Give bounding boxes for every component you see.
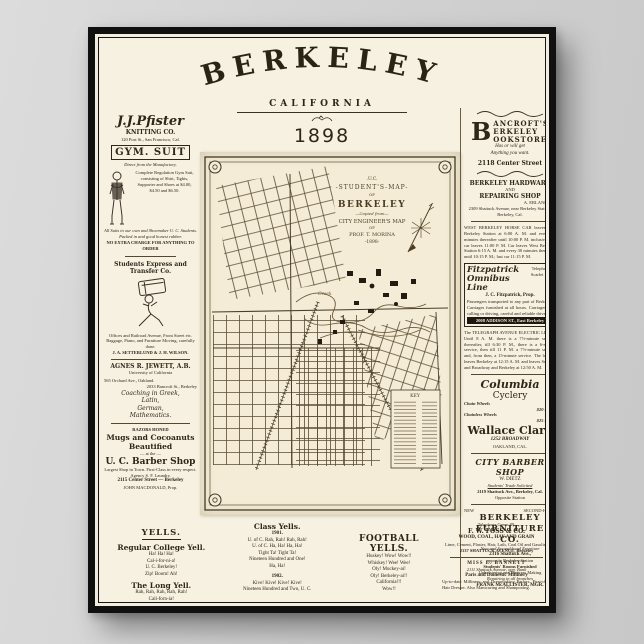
barber-body: Largest Shop in Town. First-Class in eve… — [104, 467, 197, 479]
compass-icon — [408, 203, 434, 252]
cartouche-year: -1898- — [365, 239, 380, 245]
furniture-top-left: NEW — [464, 508, 474, 513]
gym-man-illustration-icon — [104, 170, 130, 228]
yells-column: YELLS. Regular College Yell. Ha! Ha! Ha!… — [111, 522, 212, 603]
citybarber-addr: 2119 Shattuck Ave., Berkeley, Cal. — [464, 489, 546, 495]
key-entries — [394, 400, 437, 465]
regular-yell-title: Regular College Yell. — [111, 543, 212, 552]
divider — [471, 504, 546, 505]
jewett-line4: Mathematics. — [104, 412, 197, 420]
barber-title: U. C. Barber Shop — [104, 457, 197, 467]
barber-line2: Beautified — [104, 442, 197, 451]
barber-addr: 2115 Center Street — Berkeley — [104, 478, 197, 485]
yell-line: Ha, Ha! — [219, 564, 336, 571]
foss-body: Lime, Cement, Plaster, Hair, Lath, Coal … — [442, 542, 546, 548]
product-photo-background: { "colors":{"paper":"#f7f1e2","ink":"#2e… — [0, 0, 644, 644]
furniture-top-right: SECOND-HAND — [524, 508, 547, 513]
hardware-line3: REPAIRING SHOP — [464, 193, 546, 201]
ad-foss: Telephone Green 89. F. W. FOSS & CO. WOO… — [442, 522, 546, 554]
cartouche-of1: OF — [369, 192, 375, 197]
fitz-name2: Omnibus Line — [467, 275, 529, 293]
poster: BERKELEY CALIFORNIA 1898 J.J.Pfister KNI… — [98, 37, 546, 603]
pfister-name: J.J.Pfister — [104, 114, 197, 129]
cyclery-city: OAKLAND, CAL. — [464, 444, 546, 450]
bancroft-addr: 2118 Center Street — [464, 160, 546, 168]
ad-jewett: AGNES R. JEWETT, A.B. University of Cali… — [104, 363, 197, 420]
football-yells-title: FOOTBALL YELLS. — [343, 534, 435, 554]
foss-title: F. W. FOSS & CO. — [442, 528, 546, 536]
pfister-tagline: Direct from the Manufactory. — [104, 162, 197, 168]
express-footer: J. A. SETTERLUND & J. H. WILSON. — [104, 350, 197, 356]
ad-students-express: Students Express and Transfer Co. Office… — [104, 261, 197, 356]
jewett-line1: Coaching in Greek, — [104, 390, 197, 398]
class-yells-column: Class Yells. 1901. U. of C. Rah, Rah! Ra… — [219, 522, 336, 603]
fleuron-icon — [310, 115, 334, 122]
map-cartouche: .U.C. -STUDENT'S-MAP- OF BERKELEY —Copie… — [336, 176, 409, 245]
divider — [471, 374, 546, 375]
horsecar-schedule: WEST BERKELEY HORSE CAR leaves East Berk… — [464, 225, 546, 260]
ad-pfister: J.J.Pfister KNITTING CO. 120 Post St., S… — [104, 114, 197, 252]
jewett-line3: German, — [104, 405, 197, 413]
cartouche-copied: —Copied from— — [355, 211, 388, 216]
yell-line: Cali-forn-ia! — [111, 597, 212, 604]
berkeley-map: Creek .U.C. -STUDENT'S-MAP- OF BERKE — [200, 152, 460, 515]
ad-fitzpatrick: Fitzpatrick Omnibus Line Telephone Scarl… — [464, 263, 546, 327]
barber-prop: JOHN MACDONALD, Prop. — [104, 485, 197, 491]
ad-bannett: MISS E. BANNETT 2111 Shattuck Avenue, op… — [442, 561, 546, 592]
ornament-divider-icon — [475, 170, 545, 178]
yell-line: Wow!! — [343, 587, 435, 594]
citybarber-title: CITY BARBER SHOP — [464, 457, 546, 477]
divider — [471, 453, 546, 454]
creek-label: Creek — [318, 291, 332, 297]
jewett-line2: Latin, — [104, 397, 197, 405]
right-ad-column: B ANCROFT'S ERKELEY OOKSTORE Has or will… — [460, 108, 546, 590]
electric-schedule: The TELEGRAPH AVENUE ELECTRIC LINE—Until… — [464, 330, 546, 371]
page-title: BERKELEY — [197, 42, 446, 92]
cartouche-of2: OF — [369, 225, 375, 230]
cartouche-uc: .U.C. — [367, 176, 379, 182]
ad-uc-barber: RAZORS HONED Mugs and Cocoanuts Beautifi… — [104, 427, 197, 491]
cartouche-berkeley: BERKELEY — [338, 200, 406, 210]
cartouche-author: PROF. T. MORINA — [349, 232, 395, 238]
yell-line: Zip! Boom! Ah! — [111, 572, 212, 579]
cartouche-students-map: -STUDENT'S-MAP- — [336, 184, 409, 191]
jewett-title: AGNES R. JEWETT, A.B. — [104, 363, 197, 371]
cyclery-brand: Columbia — [464, 378, 546, 391]
map-drawing: Creek .U.C. -STUDENT'S-MAP- OF BERKE — [200, 152, 460, 515]
bannett-body: Up-to-date Millinery and Dressmaking Par… — [442, 579, 546, 591]
long-yell-title: The Long Yell. — [111, 581, 212, 590]
left-ad-column: J.J.Pfister KNITTING CO. 120 Post St., S… — [104, 114, 197, 491]
divider — [111, 423, 190, 424]
class-yells-title: Class Yells. — [219, 522, 336, 531]
pfister-addr: 120 Post St., San Francisco, Cal. — [104, 137, 197, 143]
yell-line: Nineteen Hundred and Two, U. C. — [219, 587, 336, 594]
divider — [125, 256, 176, 257]
arched-title: BERKELEY — [152, 42, 492, 98]
fitz-phone: Telephone Scarlet 111 — [529, 266, 546, 278]
svg-text:BERKELEY: BERKELEY — [197, 42, 446, 92]
pfister-name2: KNITTING CO. — [104, 129, 197, 137]
fitz-addr: 2008 ADDISON ST., East Berkeley — [467, 317, 546, 324]
poster-frame: BERKELEY CALIFORNIA 1898 J.J.Pfister KNI… — [88, 27, 556, 613]
key-title: KEY — [410, 393, 421, 399]
divider — [450, 557, 543, 558]
barber-line1: Mugs and Cocoanuts — [104, 433, 197, 442]
yells-section: YELLS. Regular College Yell. Ha! Ha! Ha!… — [111, 522, 546, 603]
subtitle-rule — [237, 112, 407, 113]
express-body: Offices and Railroad Avenue, Front Stree… — [104, 333, 197, 351]
map-key: KEY — [391, 390, 440, 468]
football-yells-column: FOOTBALL YELLS. Huskey! Wow! Wow!! Whisk… — [343, 522, 435, 603]
bancroft-tag2: Anything you want. — [464, 151, 546, 158]
jewett-sub: University of California — [104, 370, 197, 376]
citybarber-sub: Opposite Station — [464, 495, 546, 501]
subtitle: CALIFORNIA — [269, 99, 375, 109]
foss-addr: 2137 SHATTUCK AVENUE, Berkeley — [442, 548, 546, 554]
pfister-body: Complete Regulation Gym Suit, consisting… — [132, 170, 197, 193]
ad-city-barber: CITY BARBER SHOP W. DIETZ Students' Trad… — [464, 457, 546, 501]
porter-illustration-icon — [125, 276, 177, 328]
pfister-gymsuit-box: GYM. SUIT — [111, 145, 190, 160]
poster-mat: BERKELEY CALIFORNIA 1898 J.J.Pfister KNI… — [95, 34, 549, 606]
street-grid-northwest — [216, 166, 346, 300]
hardware-line1: BERKELEY HARDWARE — [464, 180, 546, 188]
hardware-addr: 2309 Shattuck Avenue, near Berkeley Stat… — [464, 206, 546, 218]
fitz-body: Passengers transported to any part of Be… — [467, 299, 546, 317]
divider — [111, 359, 190, 360]
bottom-ads-column: Telephone Green 89. F. W. FOSS & CO. WOO… — [442, 522, 546, 603]
pfister-footer: NO EXTRA CHARGE FOR ANYTHING TO ORDER — [104, 240, 197, 252]
bancroft-dropcap: B — [471, 121, 491, 143]
ad-cyclery: Columbia Cyclery Chain Wheels $20 to $50… — [464, 378, 546, 450]
yells-heading: YELLS. — [142, 528, 181, 540]
ad-hardware: BERKELEY HARDWARE AND REPAIRING SHOP A. … — [464, 180, 546, 218]
cyclery-brand2: Cyclery — [464, 391, 546, 401]
express-title: Students Express and Transfer Co. — [104, 261, 197, 276]
bancroft-line3: OOKSTORE — [493, 136, 546, 144]
cyclery-owner: Wallace Clark — [464, 424, 546, 437]
divider — [471, 221, 546, 222]
ad-bancroft: B ANCROFT'S ERKELEY OOKSTORE Has or will… — [464, 120, 546, 168]
pfister-note: All Suits in our own and Shoemaker U. C.… — [104, 228, 197, 240]
